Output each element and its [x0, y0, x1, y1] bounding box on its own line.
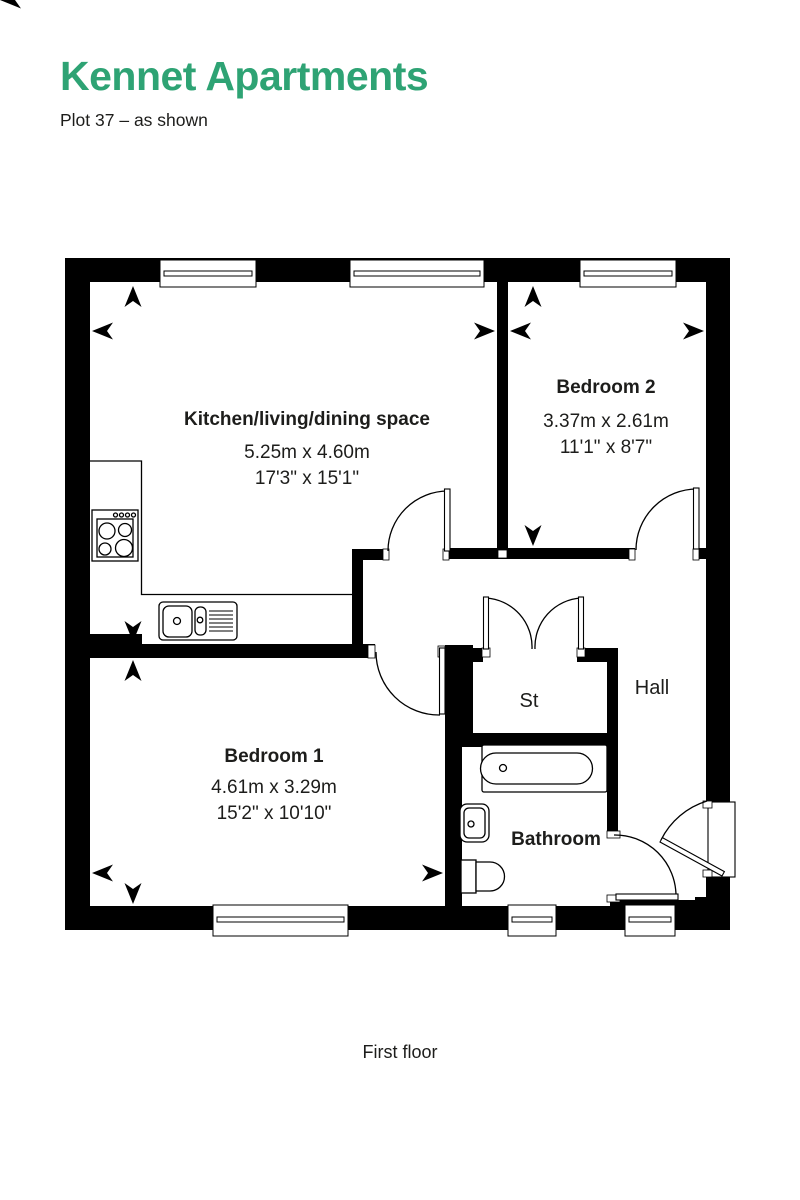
label-kitchen-metric: 5.25m x 4.60m	[244, 442, 370, 463]
basin-icon	[460, 804, 489, 842]
bath-icon	[481, 745, 608, 792]
window-bedroom1	[213, 905, 348, 936]
label-hall: Hall	[635, 677, 669, 699]
window-hall	[625, 905, 675, 936]
wall-junction-notch	[498, 550, 507, 558]
label-kitchen-imperial: 17'3" x 15'1"	[255, 468, 359, 489]
label-kitchen-name: Kitchen/living/dining space	[184, 409, 430, 430]
door-bedroom2	[629, 488, 699, 560]
window-bedroom2	[580, 260, 676, 287]
label-bedroom1-name: Bedroom 1	[224, 746, 324, 767]
label-bedroom2-name: Bedroom 2	[556, 377, 655, 398]
floorplan-page: Kennet Apartments Plot 37 – as shown	[0, 0, 800, 1200]
kitchen-sink-icon	[159, 602, 237, 640]
window-kitchen-1	[160, 260, 256, 287]
label-bedroom2-imperial: 11'1" x 8'7"	[560, 437, 652, 458]
door-storage-double	[482, 597, 585, 657]
floorplan-svg: Kitchen/living/dining space 5.25m x 4.60…	[0, 0, 800, 1200]
door-kitchen	[383, 489, 450, 560]
window-kitchen-2	[350, 260, 484, 287]
floor-label: First floor	[362, 1042, 437, 1062]
label-bedroom2-metric: 3.37m x 2.61m	[543, 411, 669, 432]
window-bathroom	[508, 905, 556, 936]
toilet-icon	[461, 860, 504, 893]
label-storage: St	[520, 690, 539, 712]
label-bedroom1-imperial: 15'2" x 10'10"	[217, 803, 332, 824]
label-bedroom1-metric: 4.61m x 3.29m	[211, 777, 337, 798]
hob-icon	[92, 510, 138, 561]
door-entrance	[660, 801, 735, 877]
door-bedroom1	[368, 645, 445, 715]
label-bathroom: Bathroom	[511, 829, 601, 850]
